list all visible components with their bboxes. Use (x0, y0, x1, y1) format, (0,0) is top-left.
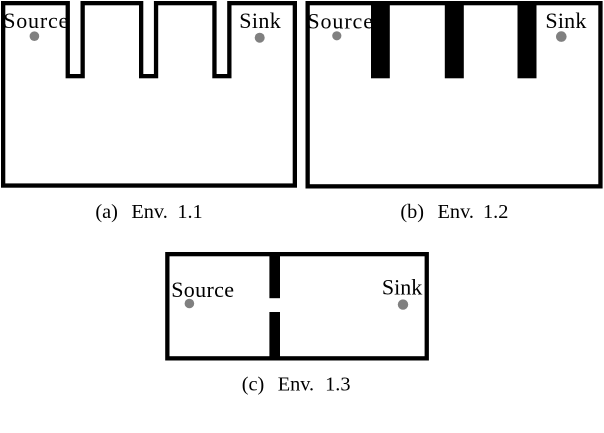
svg-text:(a)Env.1.1: (a)Env.1.1 (95, 201, 202, 223)
svg-text:Sink: Sink (382, 275, 422, 300)
svg-text:(c)Env.1.3: (c)Env.1.3 (242, 374, 351, 396)
svg-text:(b)Env.1.2: (b)Env.1.2 (400, 201, 508, 223)
svg-text:Source: Source (3, 8, 69, 33)
svg-text:Sink: Sink (239, 8, 281, 33)
svg-text:Source: Source (307, 8, 374, 33)
svg-text:Sink: Sink (545, 8, 586, 33)
svg-text:Source: Source (171, 277, 234, 302)
